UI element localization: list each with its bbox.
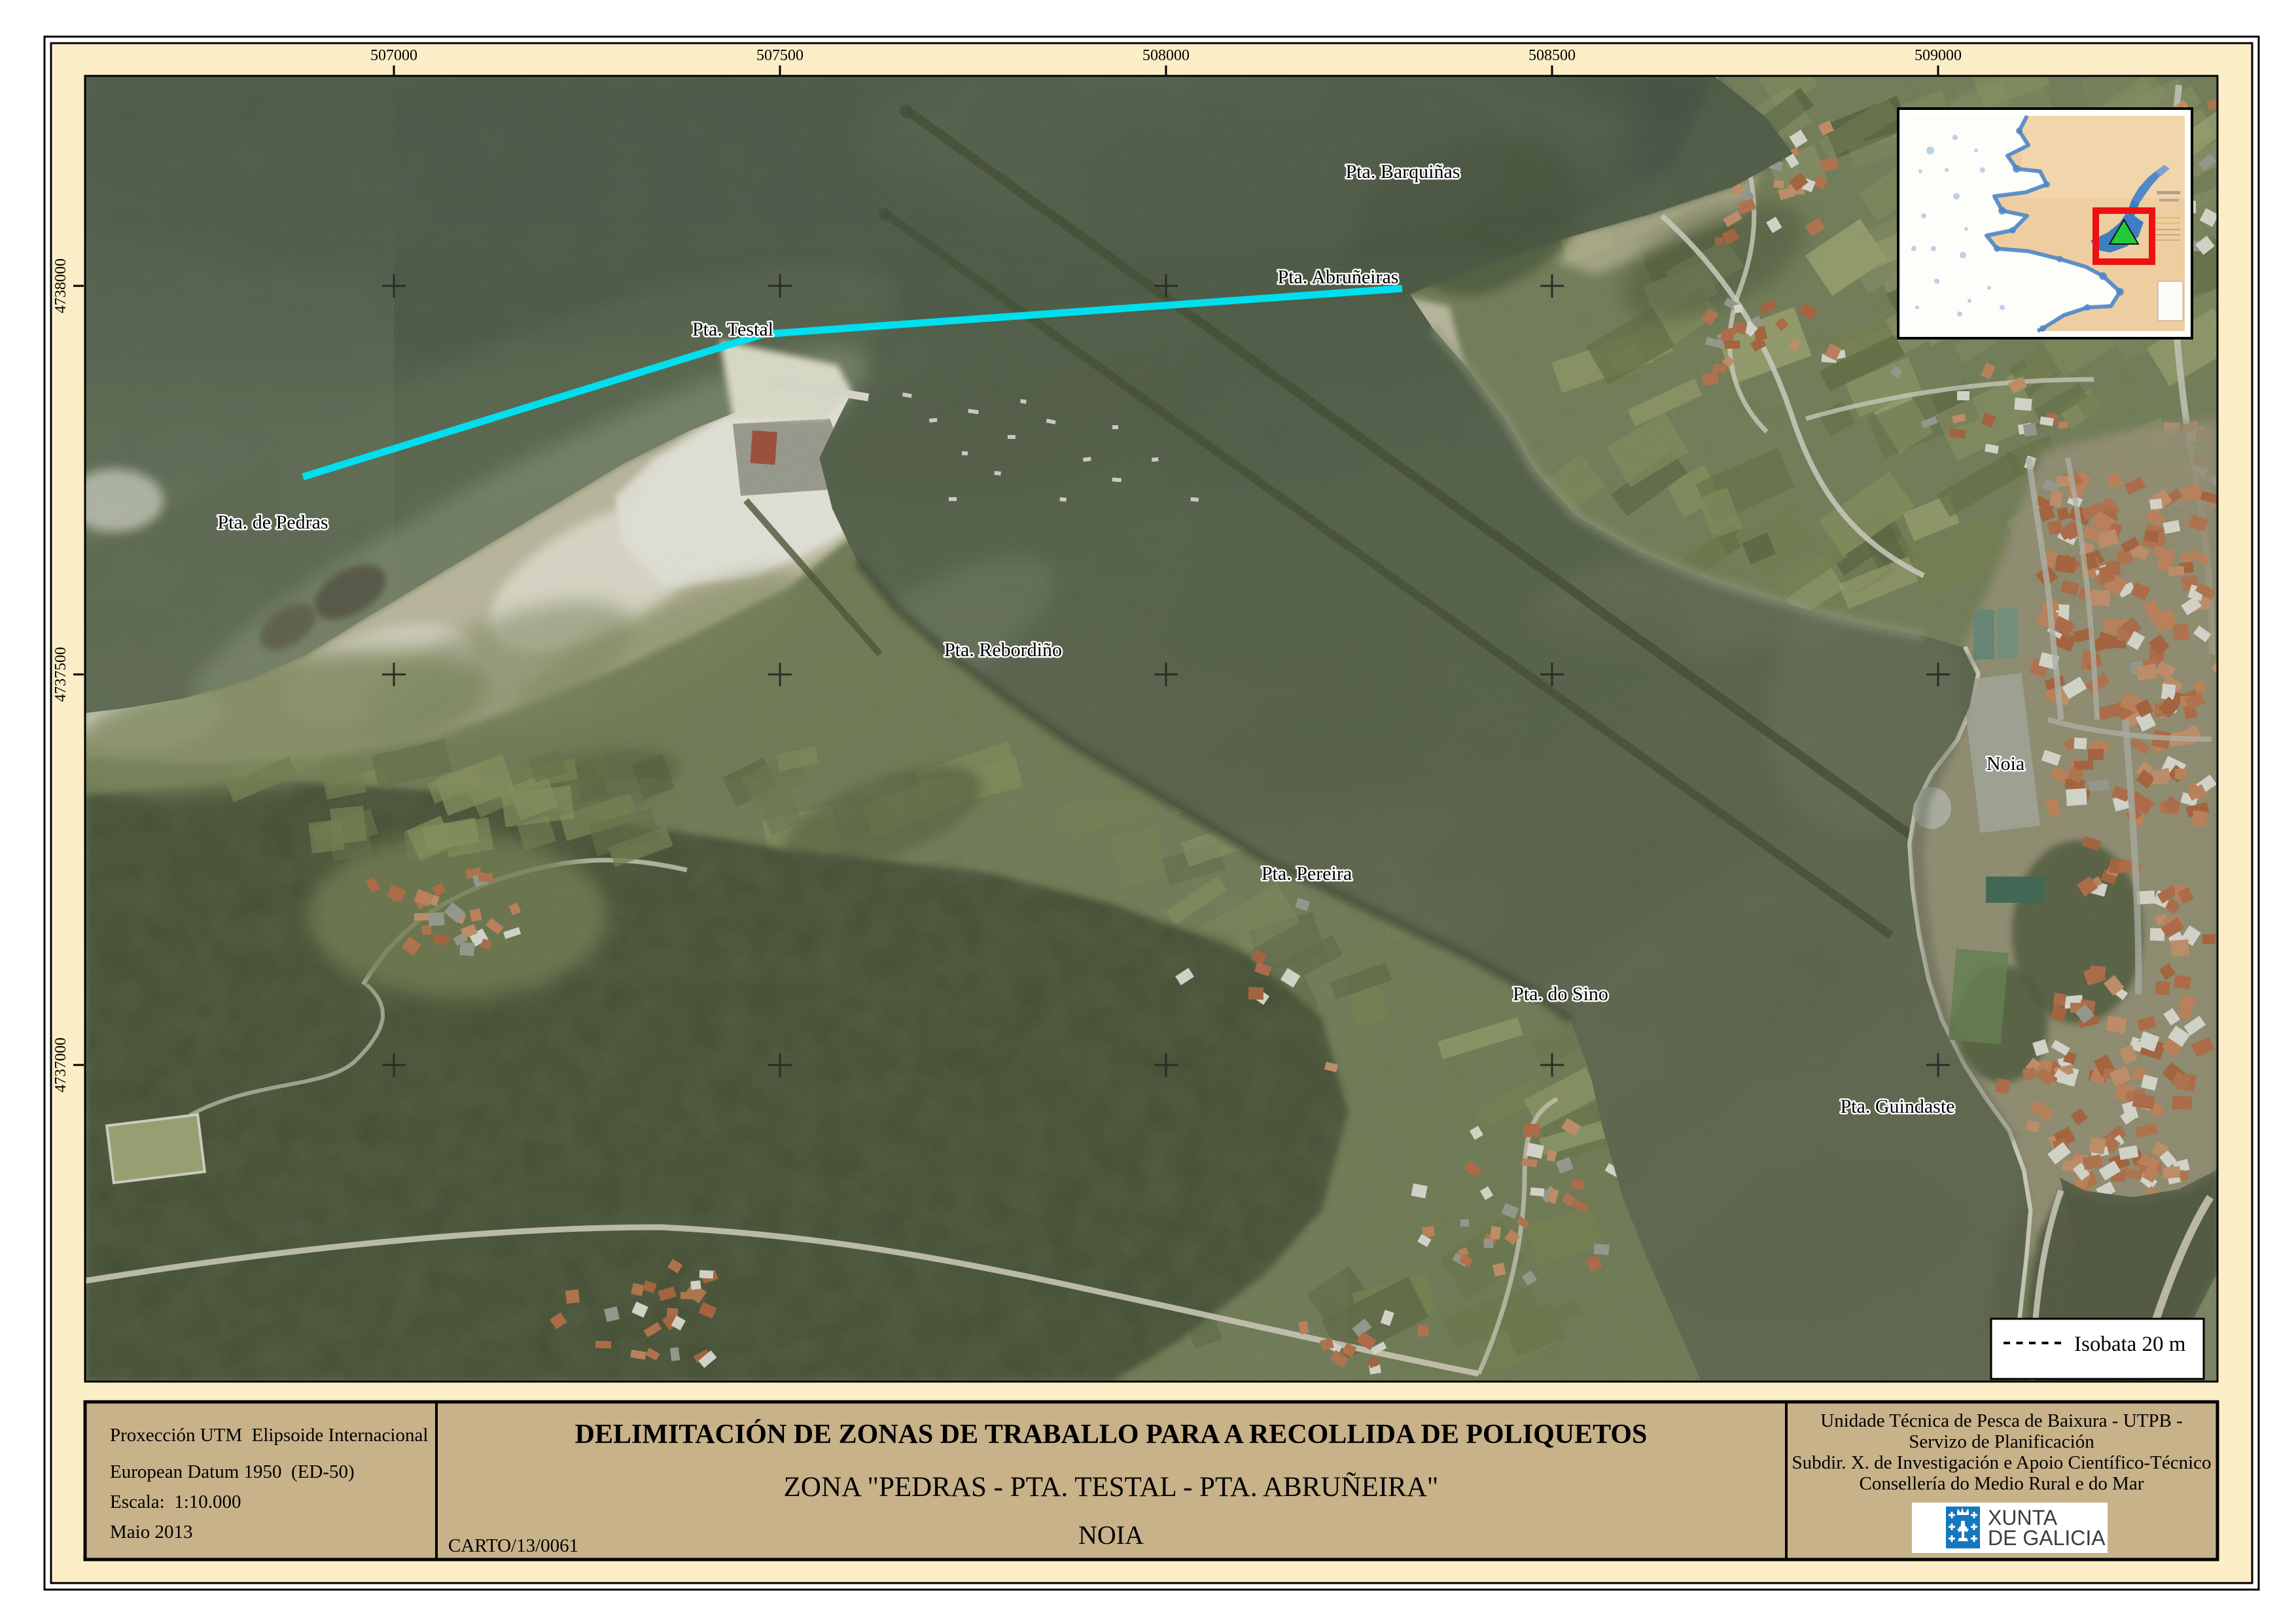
svg-text:NOIA: NOIA — [1078, 1520, 1144, 1550]
svg-text:Servizo de Planificación: Servizo de Planificación — [1909, 1431, 2094, 1452]
svg-text:CARTO/13/0061: CARTO/13/0061 — [448, 1535, 578, 1556]
svg-text:Proxección UTM Elipsoide Inte: Proxección UTM Elipsoide Internacional — [110, 1425, 428, 1446]
svg-text:Escala: 1:10.000: Escala: 1:10.000 — [110, 1491, 241, 1512]
svg-text:European Datum 1950 (ED-50): European Datum 1950 (ED-50) — [110, 1461, 355, 1482]
svg-text:Unidade Técnica de Pesca de Ba: Unidade Técnica de Pesca de Baixura - UT… — [1820, 1410, 2183, 1431]
svg-text:Pta. do Sino: Pta. do Sino — [1513, 983, 1608, 1005]
svg-text:Noia: Noia — [1987, 753, 2024, 775]
svg-text:Pta. de Pedras: Pta. de Pedras — [217, 512, 328, 533]
svg-text:507000: 507000 — [370, 47, 417, 64]
svg-text:Pta. Abruñeiras: Pta. Abruñeiras — [1278, 266, 1399, 288]
svg-text:Pta. Barquiñas: Pta. Barquiñas — [1346, 161, 1460, 183]
svg-text:Isobata 20 m: Isobata 20 m — [2074, 1333, 2186, 1356]
svg-text:DE GALICIA: DE GALICIA — [1988, 1526, 2106, 1550]
svg-text:DELIMITACIÓN DE ZONAS DE TRABA: DELIMITACIÓN DE ZONAS DE TRABALLO PARA A… — [575, 1419, 1648, 1450]
svg-text:Subdir. X. de Investigación e: Subdir. X. de Investigación e Apoio Cien… — [1792, 1452, 2211, 1473]
svg-text:ZONA "PEDRAS - PTA. TESTAL - P: ZONA "PEDRAS - PTA. TESTAL - PTA. ABRUÑE… — [784, 1472, 1439, 1503]
svg-text:4737500: 4737500 — [52, 647, 69, 702]
svg-text:Consellería do Medio Rural e d: Consellería do Medio Rural e do Mar — [1860, 1473, 2144, 1494]
svg-text:508000: 508000 — [1142, 47, 1190, 64]
svg-text:4737000: 4737000 — [52, 1037, 69, 1092]
svg-text:Pta. Pereira: Pta. Pereira — [1262, 863, 1352, 884]
svg-text:507500: 507500 — [756, 47, 804, 64]
svg-text:Pta. Testal: Pta. Testal — [692, 319, 773, 340]
svg-text:Pta. Guindaste: Pta. Guindaste — [1841, 1096, 1955, 1117]
svg-text:Pta. Rebordiño: Pta. Rebordiño — [944, 639, 1062, 661]
svg-text:Maio 2013: Maio 2013 — [110, 1522, 192, 1543]
svg-text:508500: 508500 — [1528, 47, 1576, 64]
svg-text:509000: 509000 — [1915, 47, 1962, 64]
svg-text:4738000: 4738000 — [52, 258, 69, 313]
